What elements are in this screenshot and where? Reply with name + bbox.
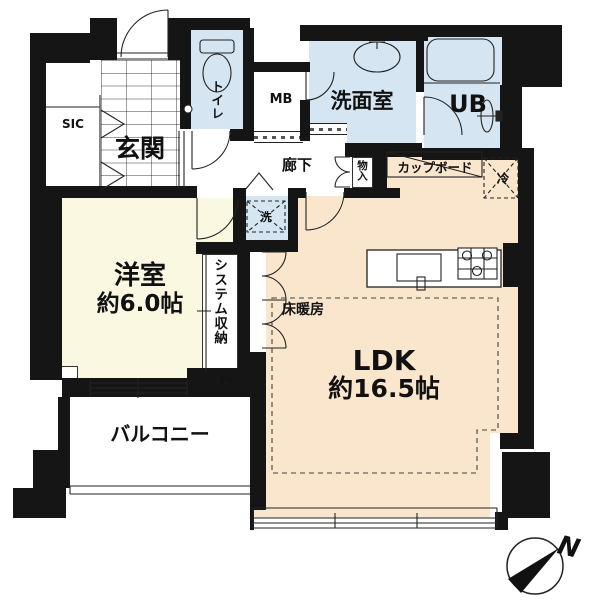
wall xyxy=(90,18,117,60)
room-label-corridor: 廊下 xyxy=(274,158,320,174)
wall xyxy=(233,240,298,252)
label-cupboard: カップボード xyxy=(389,161,481,174)
outer-column xyxy=(502,452,550,518)
label-pipe-space: PS xyxy=(211,377,242,386)
room-label-washroom: 洗面室 xyxy=(310,90,414,112)
wall xyxy=(518,148,534,435)
room-area-western: 約6.0帖 xyxy=(92,292,188,316)
wall xyxy=(422,148,518,160)
room-area-ldk: 約16.5帖 xyxy=(324,376,444,402)
wall xyxy=(196,242,240,254)
room-label-entrance: 玄関 xyxy=(104,136,176,162)
label-washer: 洗 xyxy=(254,211,278,223)
kitchen-pilaster xyxy=(503,243,520,287)
wall xyxy=(416,37,424,92)
wall xyxy=(250,397,266,510)
storage-door-arcs xyxy=(335,157,350,187)
wall xyxy=(500,433,534,449)
window-sill-fill xyxy=(253,508,497,518)
entrance-threshold xyxy=(117,53,168,59)
entrance-door-arc xyxy=(121,10,168,57)
sic-partition-line xyxy=(46,95,100,186)
outer-column xyxy=(13,488,66,518)
meter-box-hatch-wall xyxy=(254,131,303,143)
floor-plan: N SIC 玄関 トイレ MB 洗面室 UB 廊下 物入 カップボード 冷 洗 … xyxy=(0,0,600,600)
label-floor-heating: 床暖房 xyxy=(282,303,346,318)
wall xyxy=(188,18,250,30)
label-refrigerator: 冷 xyxy=(489,172,517,185)
wall xyxy=(416,25,506,37)
wall xyxy=(62,378,187,397)
balcony-railing xyxy=(70,486,250,494)
toilet-door-arc xyxy=(192,131,230,169)
wall xyxy=(300,25,428,41)
wall xyxy=(238,252,250,352)
room-label-sic: SIC xyxy=(46,118,100,131)
room-label-mb: MB xyxy=(264,93,298,107)
balcony-left-wall xyxy=(58,397,70,452)
wall xyxy=(46,186,197,198)
room-label-ldk: LDK xyxy=(344,346,424,375)
wall xyxy=(502,25,562,87)
wall xyxy=(180,25,191,129)
wall xyxy=(230,129,254,141)
laundry-folding-door-icon xyxy=(245,173,273,190)
compass-north-label: N xyxy=(554,530,583,564)
outer-column xyxy=(33,450,70,488)
room-label-ub: UB xyxy=(444,92,492,117)
compass-icon xyxy=(507,538,563,594)
wall xyxy=(30,33,90,63)
room-label-toilet: トイレ xyxy=(210,80,223,132)
washroom-hatch-wall xyxy=(310,123,347,135)
wall xyxy=(300,100,310,141)
room-label-western: 洋室 xyxy=(104,263,176,290)
wall xyxy=(373,150,387,198)
wall xyxy=(238,352,266,368)
label-system-storage: システム収納 xyxy=(212,258,226,370)
wall xyxy=(30,63,46,195)
wall xyxy=(250,505,254,530)
wall xyxy=(288,196,298,240)
wall xyxy=(344,188,400,198)
wall xyxy=(30,186,62,380)
double-door-opening xyxy=(250,252,266,352)
entrance-tile-floor xyxy=(101,60,180,188)
wall xyxy=(243,28,254,141)
wall xyxy=(243,62,310,72)
wall xyxy=(500,85,522,150)
washroom-fill-lower xyxy=(347,123,416,143)
room-label-balcony: バルコニー xyxy=(100,424,220,445)
room-label-storage: 物入 xyxy=(356,160,367,188)
wall xyxy=(495,512,508,530)
